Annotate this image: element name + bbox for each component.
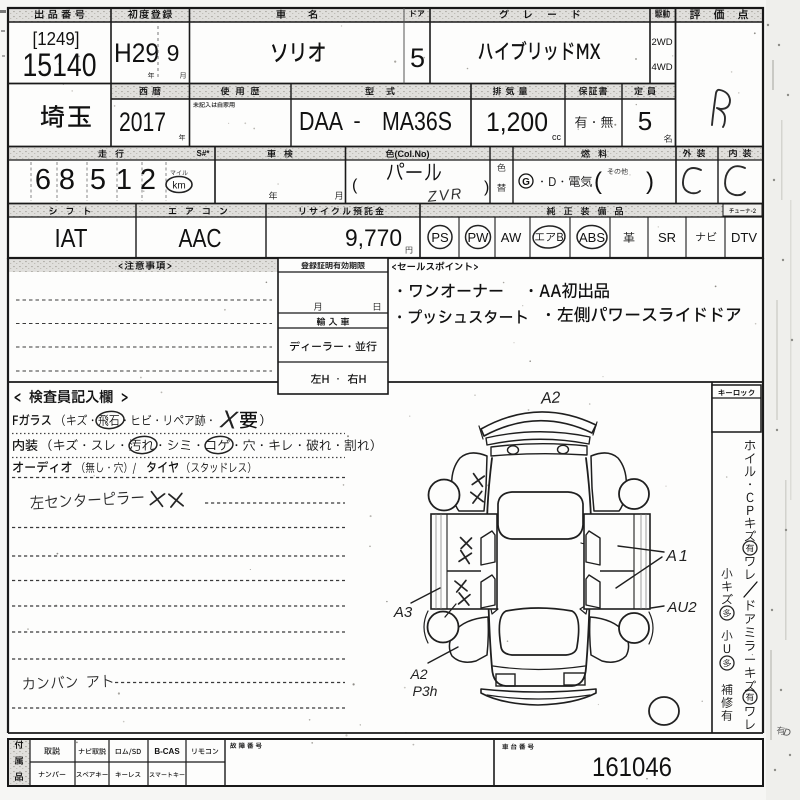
svg-text:1,200: 1,200 [486,107,548,137]
svg-text:PS: PS [431,230,449,245]
svg-text:A3: A3 [393,604,413,621]
svg-text:8: 8 [59,164,75,196]
svg-text:ABS: ABS [579,230,605,245]
svg-text:DTV: DTV [731,230,757,245]
svg-text:(: ( [594,168,602,195]
svg-text:cc: cc [552,132,562,142]
svg-text:9,770: 9,770 [345,225,402,252]
svg-text:AAC: AAC [179,223,222,253]
svg-text:[1249]: [1249] [33,29,80,49]
svg-text:4WD: 4WD [651,62,672,73]
svg-text:MA36S: MA36S [382,106,452,136]
svg-text:2: 2 [140,164,156,196]
svg-text:AW: AW [501,230,522,245]
svg-text:2WD: 2WD [651,37,672,48]
svg-text:IAT: IAT [55,223,88,253]
svg-text:): ) [484,179,489,196]
svg-text:6: 6 [35,164,51,196]
svg-text:DAA: DAA [299,106,344,136]
svg-text:PW: PW [468,230,490,245]
svg-text:1: 1 [116,164,132,196]
svg-text:A2: A2 [539,389,561,407]
svg-text:AU2: AU2 [666,599,697,616]
svg-text:-: - [353,108,360,133]
svg-text:A2: A2 [409,666,427,682]
svg-text:9: 9 [167,40,180,66]
svg-text:(Col.No): (Col.No) [395,149,430,159]
svg-text:161046: 161046 [592,752,672,782]
svg-text:H29: H29 [114,38,159,68]
svg-text:P3h: P3h [413,683,438,699]
svg-text:A1: A1 [665,548,690,565]
svg-text:G: G [522,177,530,188]
svg-text:km: km [172,181,185,192]
svg-text:B-CAS: B-CAS [154,747,180,756]
svg-text:S#*: S#* [197,149,211,158]
svg-text:SR: SR [658,230,676,245]
svg-text:(: ( [352,177,358,194]
svg-text:15140: 15140 [23,47,97,83]
svg-text:5: 5 [638,106,652,136]
svg-text:5: 5 [90,164,106,196]
svg-text:2017: 2017 [119,107,166,137]
svg-text:5: 5 [410,43,425,73]
svg-text:): ) [646,168,654,195]
